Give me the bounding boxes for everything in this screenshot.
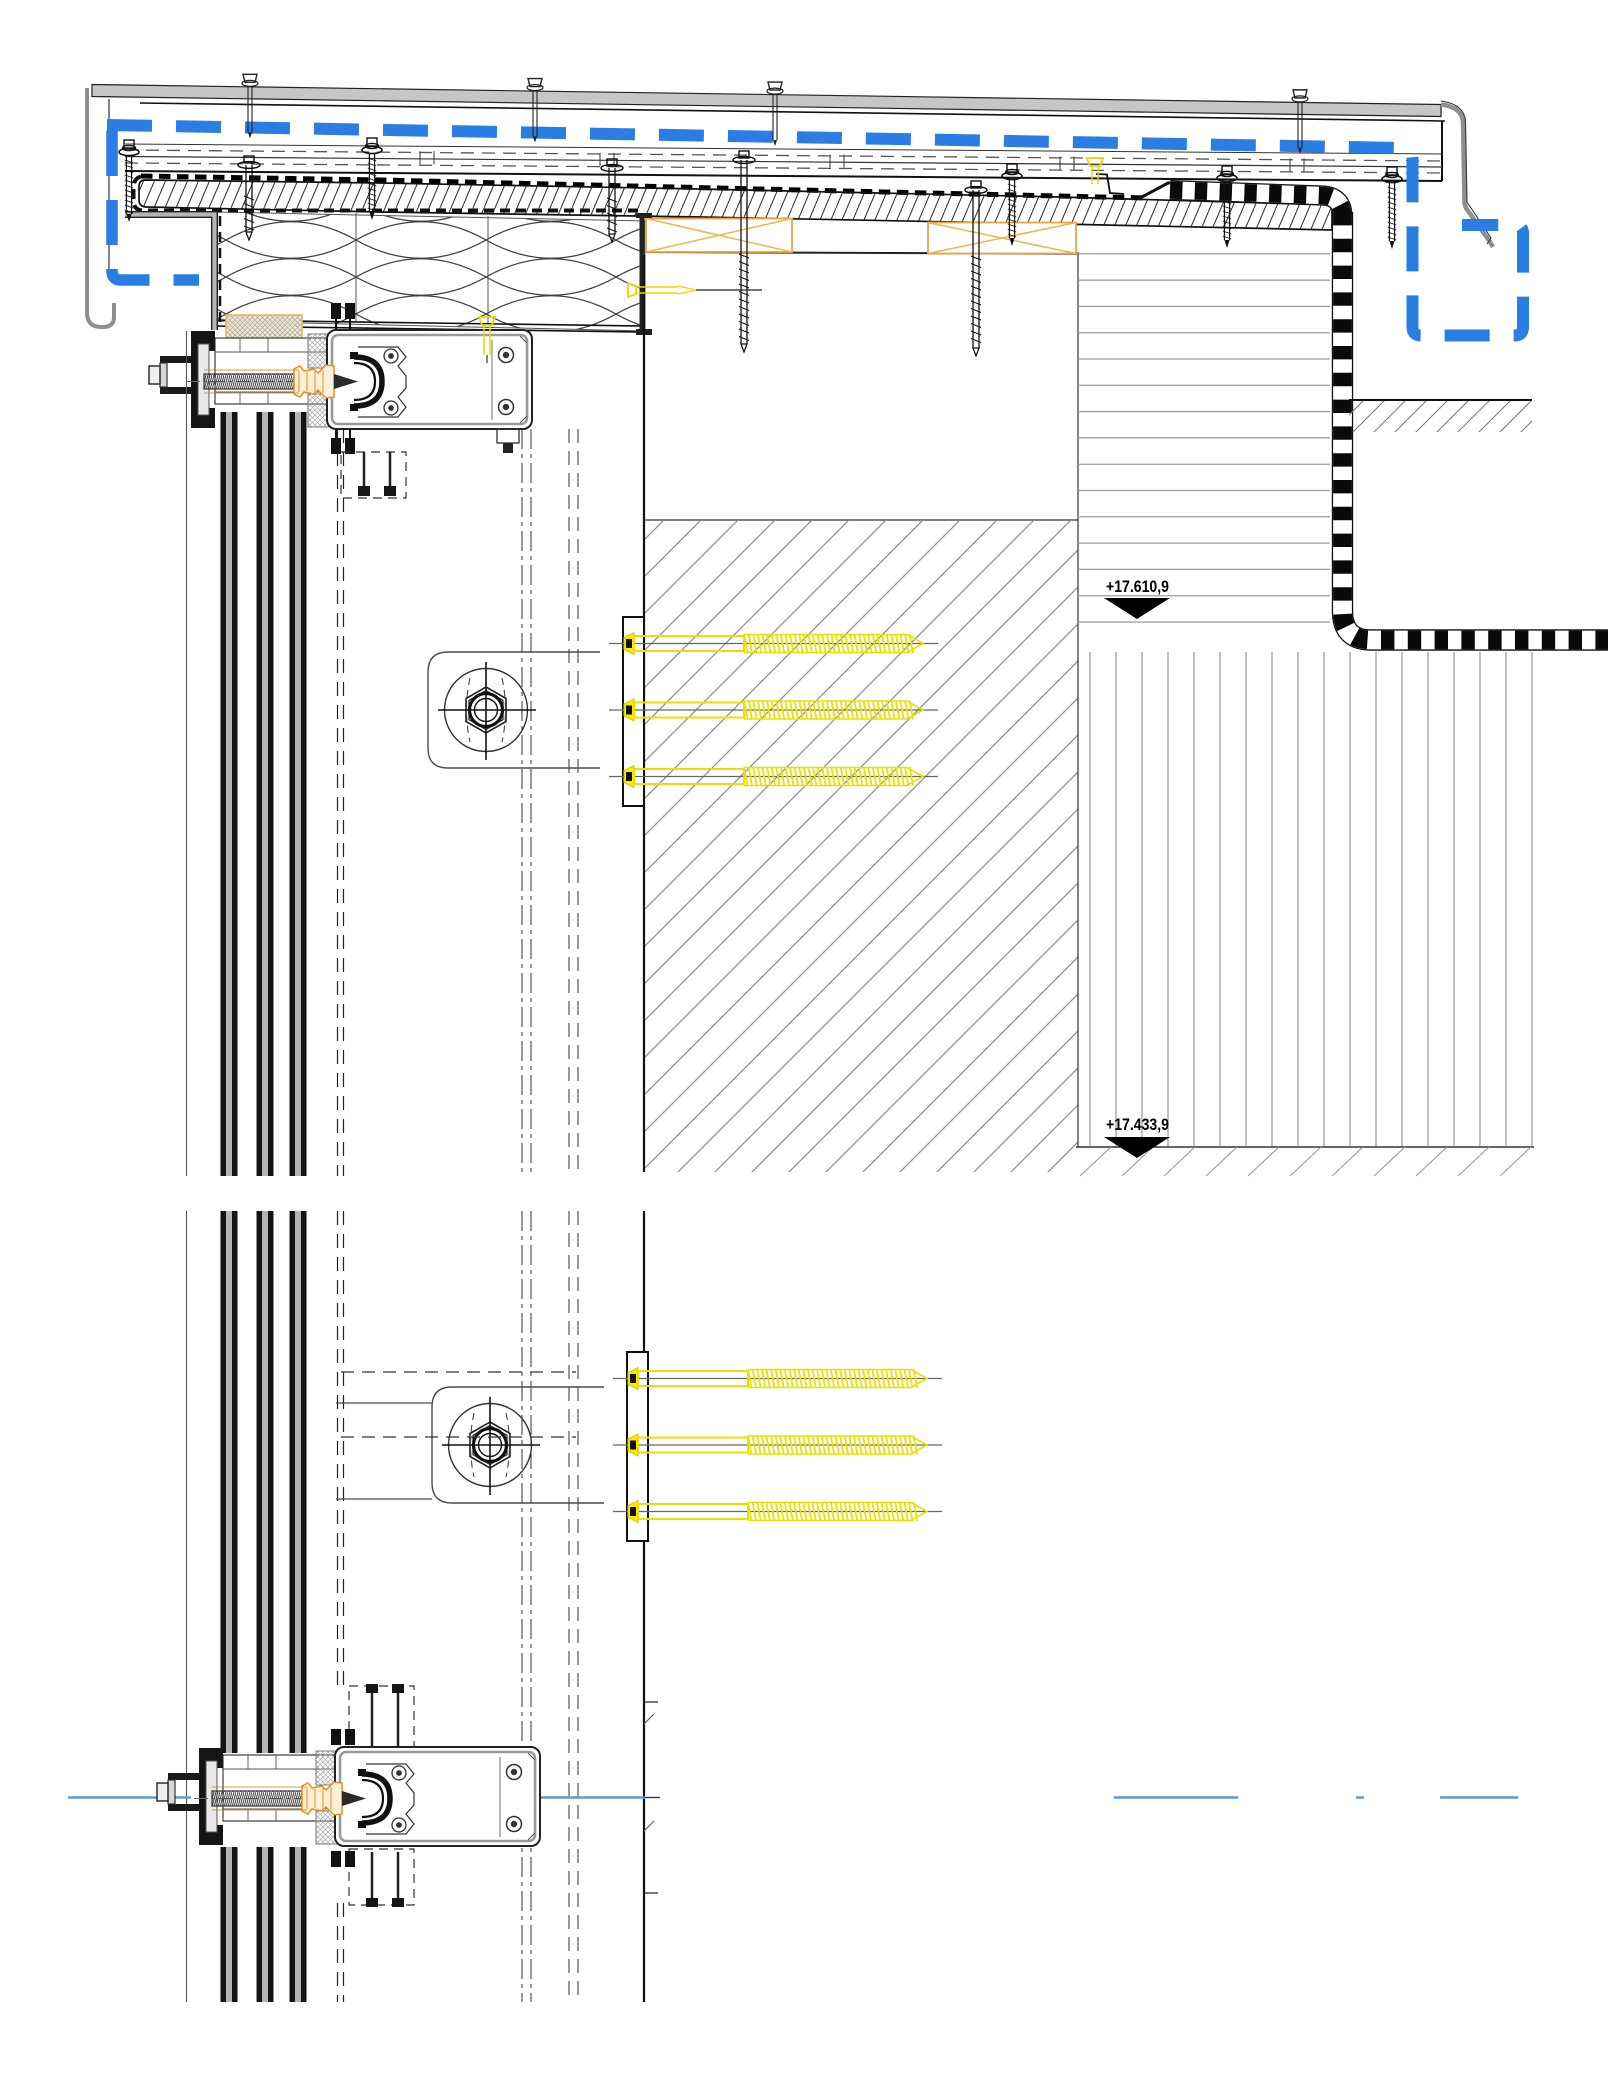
- svg-text:+17.433,9: +17.433,9: [1106, 1115, 1169, 1134]
- svg-text:+17.610,9: +17.610,9: [1106, 577, 1169, 596]
